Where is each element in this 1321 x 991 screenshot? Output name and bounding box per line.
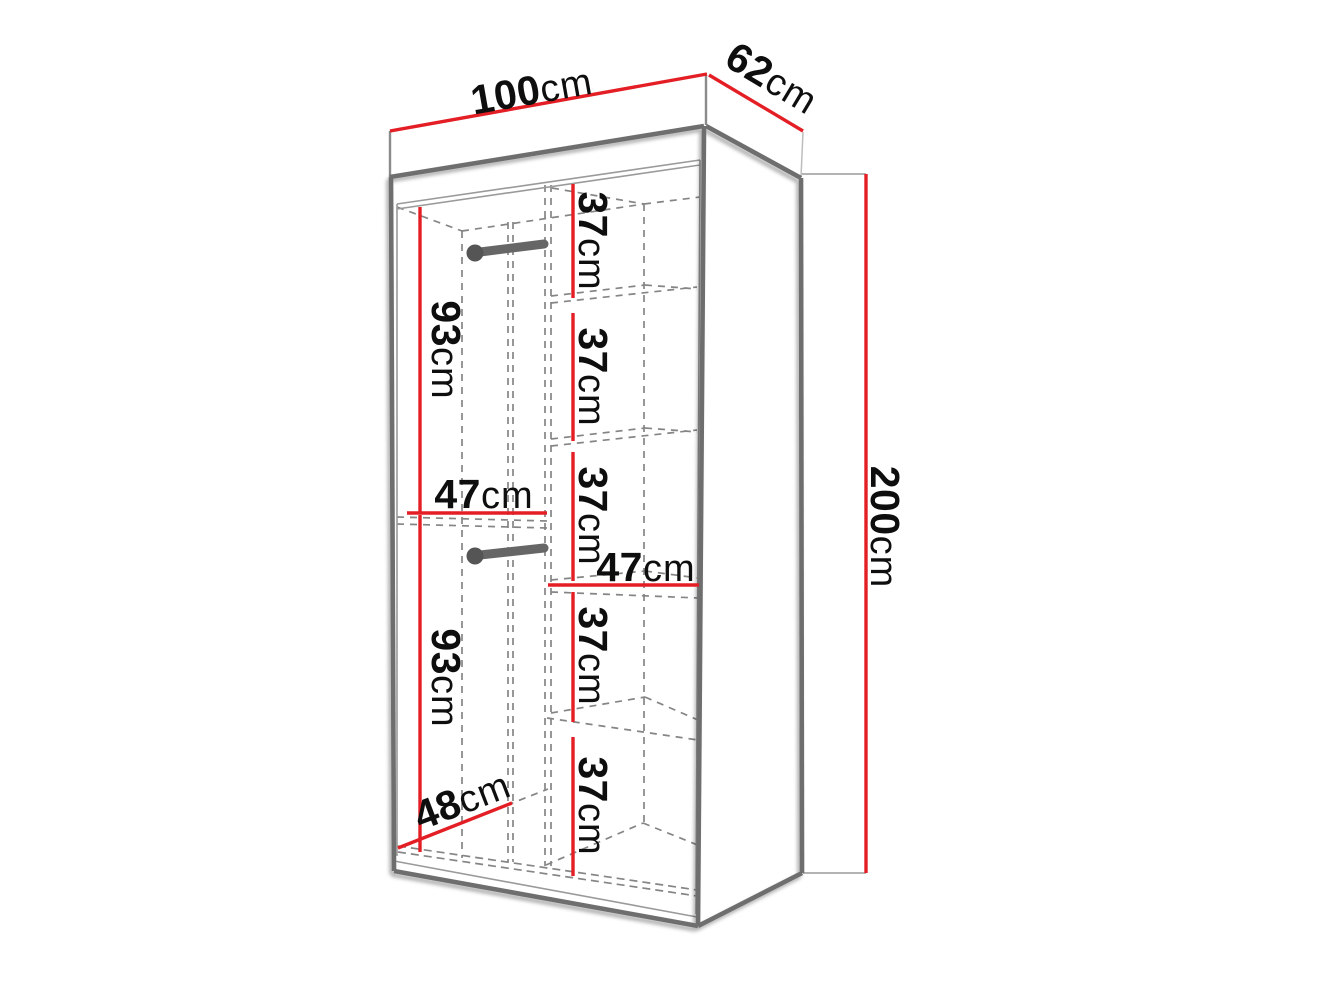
rail-end-cap xyxy=(467,245,484,262)
top-side-edge xyxy=(706,126,801,178)
side-bottom-edge xyxy=(698,873,802,926)
rail-end-cap xyxy=(467,548,484,565)
dim-label-hang-93cm-bottom: 93cm xyxy=(423,628,469,727)
dim-label-width-47cm-left: 47cm xyxy=(434,471,533,517)
dim-label-shelf-37cm-1: 37cm xyxy=(570,191,616,290)
top-front-edge xyxy=(390,126,704,177)
left-edge xyxy=(391,177,394,871)
dim-label-width-100cm: 100cm xyxy=(467,57,596,124)
dim-label-shelf-37cm-2: 37cm xyxy=(570,327,616,426)
diagram-canvas: 100cm 62cm 200cm 37cm 37cm 37cm 37cm 37c… xyxy=(0,0,1321,991)
dim-label-hang-93cm-top: 93cm xyxy=(423,300,469,399)
hanging-rail-top xyxy=(467,244,545,262)
wardrobe-dimension-diagram: 100cm 62cm 200cm 37cm 37cm 37cm 37cm 37c… xyxy=(0,0,1321,991)
dim-label-depth-48cm: 48cm xyxy=(407,761,516,840)
dim-label-height-200cm: 200cm xyxy=(862,466,908,589)
side-back-edge xyxy=(801,178,802,873)
dim-label-depth-62cm: 62cm xyxy=(718,33,827,124)
plinth-top-line xyxy=(394,861,697,917)
hanging-rail-bottom xyxy=(467,548,545,565)
shelf-4 xyxy=(547,697,698,740)
dimension-labels: 100cm 62cm 200cm 37cm 37cm 37cm 37cm 37c… xyxy=(407,33,908,856)
crown-back-edge xyxy=(801,132,803,177)
bottom-front-edge xyxy=(394,871,698,926)
dim-label-shelf-37cm-4: 37cm xyxy=(570,606,616,705)
dim-label-shelf-37cm-5: 37cm xyxy=(570,756,616,855)
dim-label-width-47cm-right: 47cm xyxy=(596,544,695,590)
